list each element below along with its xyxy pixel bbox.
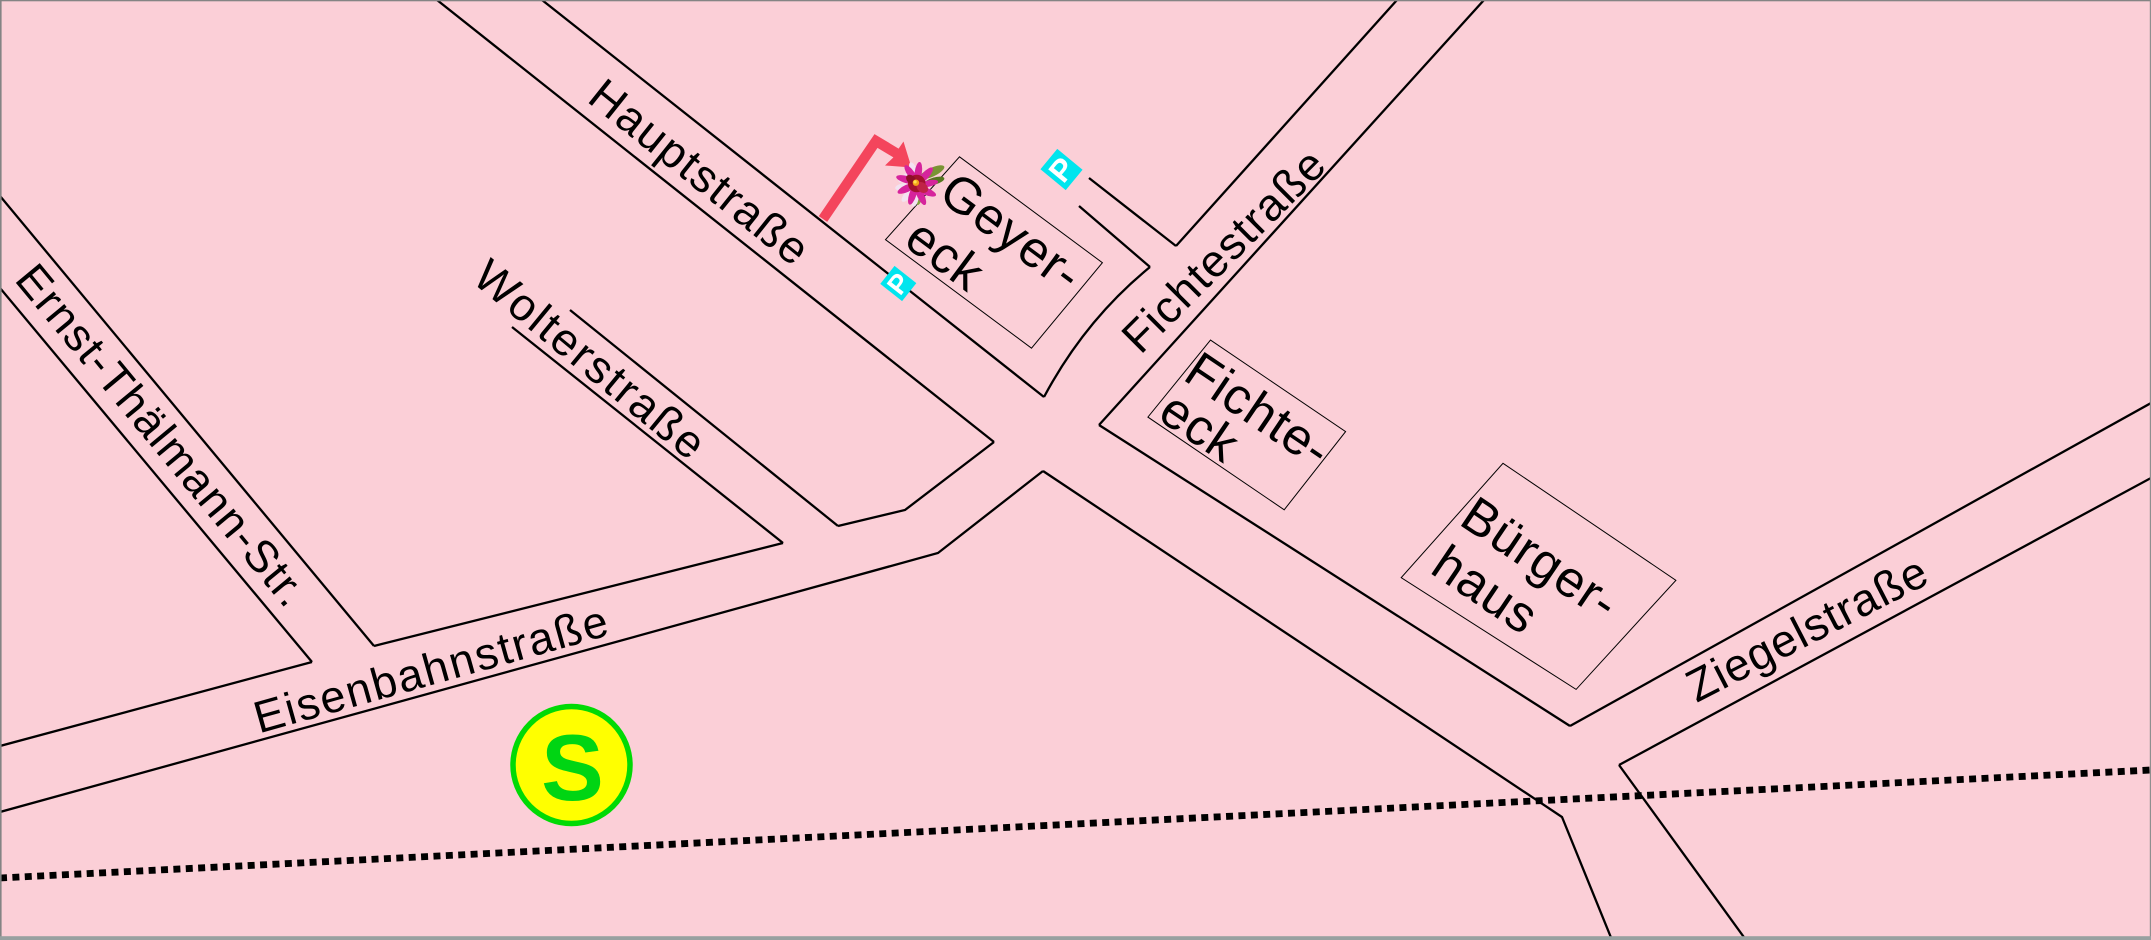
svg-text:S: S [541, 715, 604, 820]
